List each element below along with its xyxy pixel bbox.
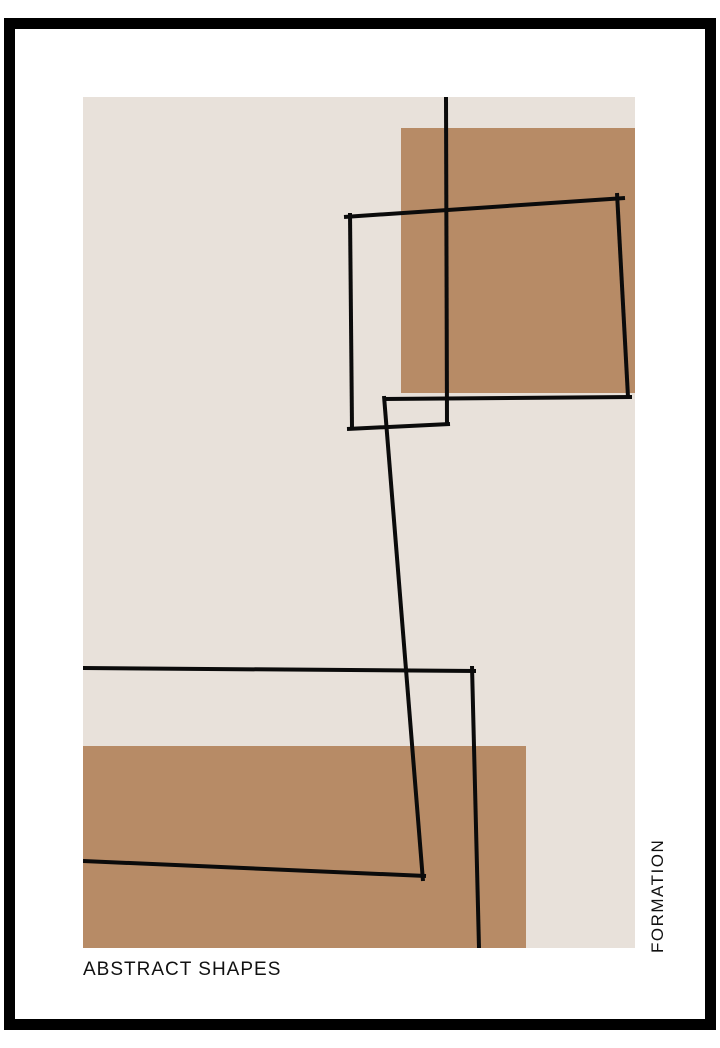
big-quad-bottom-edge	[383, 397, 632, 399]
poster-page: ABSTRACT SHAPES FORMATION	[0, 0, 720, 1048]
long-vertical-line	[446, 97, 447, 425]
artwork-canvas	[0, 0, 720, 1048]
accent-rect-top-right	[401, 128, 635, 393]
poster-title: ABSTRACT SHAPES	[83, 960, 281, 979]
accent-rect-bottom-left	[83, 746, 526, 948]
poster-side-label: FORMATION	[648, 839, 668, 953]
small-quad-left-edge	[350, 213, 352, 428]
